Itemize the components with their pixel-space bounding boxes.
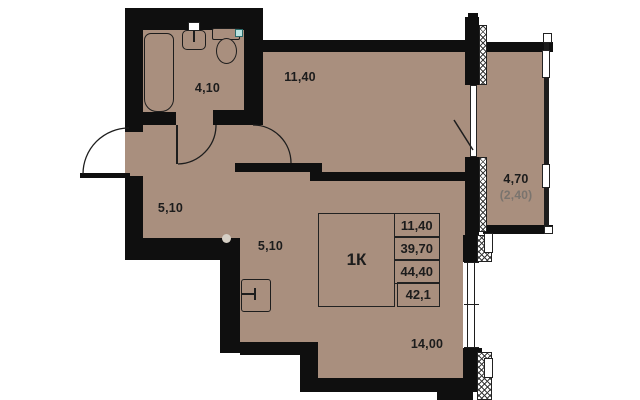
corridor-area-label: 5,10 xyxy=(248,239,293,253)
living-area-label: 14,00 xyxy=(402,337,452,351)
toilet-bowl xyxy=(216,38,237,64)
top-room-area-label: 11,40 xyxy=(275,70,325,84)
window-living-frame-outer xyxy=(467,262,468,348)
wall-left-lower xyxy=(220,238,240,353)
wall-bathroom-bottom-right xyxy=(213,110,244,125)
unit-area-row-1: 11,40 xyxy=(394,213,441,238)
wall-top-room-ceiling xyxy=(263,40,465,52)
entry-door-arc xyxy=(83,128,129,174)
wall-partition-left xyxy=(235,163,322,172)
balcony-glazing-gap-upper xyxy=(542,50,550,78)
balcony-reduced-area-label: (2,40) xyxy=(487,188,545,202)
insulation-hatch-mid xyxy=(479,157,487,232)
wall-hall-bottom xyxy=(125,238,220,260)
unit-area-row-3: 44,40 xyxy=(394,259,441,284)
floor-plan: 4,10 11,40 5,10 5,10 14,00 4,70 (2,40) 1… xyxy=(0,0,640,400)
faucet-slot xyxy=(188,22,200,31)
wall-balcony-bottom xyxy=(483,225,553,234)
unit-area-row-2: 39,70 xyxy=(394,236,441,261)
faucet-stem xyxy=(193,31,195,42)
window-living-sill-bottom xyxy=(464,347,479,348)
facade-bracket-lower xyxy=(484,358,493,378)
wall-right-pillar-lower xyxy=(465,157,479,235)
entry-door-leaf xyxy=(80,173,130,178)
floor-entry-threshold xyxy=(125,132,143,176)
window-living-sill-mid xyxy=(464,304,479,305)
balcony-corner-marker-top xyxy=(543,33,552,43)
balcony-door-frame xyxy=(470,85,477,157)
sink-kitchen xyxy=(241,279,271,312)
balcony-area-label: 4,70 xyxy=(487,172,545,186)
wall-right-pillar-cap xyxy=(468,13,478,17)
sink-kitchen-tap-cross xyxy=(254,288,256,300)
balcony-corner-marker-bottom xyxy=(544,226,553,234)
wall-left-upper xyxy=(125,8,143,132)
window-living xyxy=(463,262,480,348)
insulation-hatch-upper xyxy=(479,25,487,85)
facade-bracket-upper xyxy=(484,233,493,253)
unit-area-row-4: 42,1 xyxy=(397,282,441,307)
wall-bottom-main xyxy=(300,378,473,392)
window-living-sill-top xyxy=(464,262,479,263)
wall-bathroom-bottom-left xyxy=(143,112,176,125)
vent-marker-bathroom xyxy=(235,29,243,37)
unit-type-cell: 1К xyxy=(318,213,395,307)
column-dot-marker xyxy=(222,234,231,243)
wall-partition-right xyxy=(318,172,468,181)
window-living-frame-inner xyxy=(474,262,475,348)
wall-bathroom-right xyxy=(244,8,263,125)
bathtub xyxy=(144,33,174,112)
bathroom-area-label: 4,10 xyxy=(185,81,230,95)
floor-top-room xyxy=(253,40,468,172)
wall-bottom-stub xyxy=(437,392,473,400)
hall-area-label: 5,10 xyxy=(148,201,193,215)
